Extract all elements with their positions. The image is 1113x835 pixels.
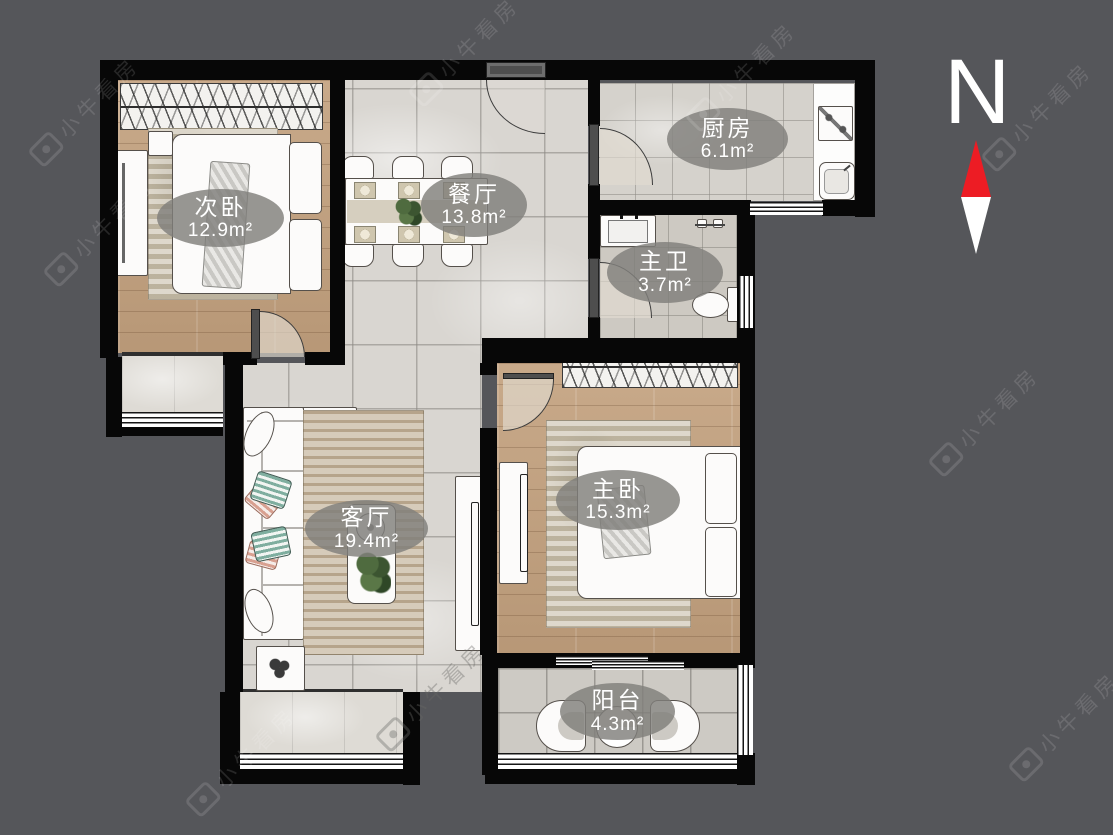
shower-bar bbox=[695, 224, 725, 226]
room-area: 19.4m² bbox=[334, 531, 399, 553]
tv bbox=[471, 502, 479, 626]
camera-icon bbox=[42, 250, 80, 288]
camera-icon bbox=[184, 780, 222, 818]
dining-chair bbox=[342, 156, 374, 179]
room-area: 4.3m² bbox=[591, 714, 645, 736]
room-name: 次卧 bbox=[195, 194, 247, 220]
wall-segment bbox=[855, 60, 875, 217]
wall-segment bbox=[482, 338, 755, 363]
room-area: 12.9m² bbox=[188, 220, 253, 242]
wall-segment bbox=[588, 200, 751, 215]
place-setting bbox=[354, 182, 376, 199]
stove bbox=[818, 106, 853, 141]
entry-door-leaf bbox=[486, 62, 546, 78]
wardrobe bbox=[120, 83, 323, 130]
room-label-secondary-bedroom: 次卧 12.9m² bbox=[157, 189, 284, 247]
dining-chair bbox=[392, 244, 424, 267]
wall-segment bbox=[330, 80, 345, 365]
tv bbox=[520, 474, 528, 572]
sliding-door-balcony bbox=[592, 661, 684, 670]
wall-segment bbox=[106, 426, 223, 436]
wall-segment bbox=[482, 653, 498, 775]
sofa-seam bbox=[263, 584, 303, 586]
pillow bbox=[289, 142, 322, 214]
pillow bbox=[705, 527, 737, 597]
camera-icon bbox=[1007, 745, 1045, 783]
watermark-text: 小牛看房 bbox=[1031, 665, 1113, 760]
bathroom-door-leaf bbox=[589, 258, 599, 318]
room-label-master-bathroom: 主卫 3.7m² bbox=[607, 242, 723, 303]
baywindow-sill bbox=[122, 352, 223, 356]
room-name: 主卧 bbox=[592, 476, 644, 502]
wall-segment bbox=[305, 352, 345, 365]
wall-segment bbox=[225, 357, 243, 692]
window-kitchen bbox=[750, 202, 823, 215]
room-area: 3.7m² bbox=[638, 275, 692, 297]
place-setting bbox=[354, 226, 376, 243]
pillow bbox=[289, 219, 322, 291]
watermark: 小牛看房 bbox=[1005, 665, 1113, 786]
kitchen-door-leaf bbox=[589, 124, 599, 186]
room-area: 6.1m² bbox=[701, 141, 755, 163]
room-name: 餐厅 bbox=[448, 181, 500, 207]
room-name: 阳台 bbox=[592, 687, 644, 713]
wall-segment bbox=[485, 768, 753, 784]
bathroom-basin bbox=[608, 220, 648, 243]
north-label: N bbox=[944, 46, 1010, 138]
room-name: 主卫 bbox=[639, 248, 691, 274]
camera-icon bbox=[927, 440, 965, 478]
wall-segment bbox=[106, 357, 122, 437]
room-label-dining-room: 餐厅 13.8m² bbox=[421, 173, 527, 237]
window-bedroom-bay bbox=[122, 412, 223, 427]
wall-segment bbox=[588, 213, 600, 259]
window-balcony-south bbox=[498, 753, 737, 769]
pillow bbox=[705, 453, 737, 524]
floor-plan-canvas: 次卧 12.9m² 餐厅 13.8m² 厨房 6.1m² 主卫 3.7m² 客厅… bbox=[0, 0, 1113, 835]
wall-segment bbox=[480, 428, 497, 655]
window-balcony-east bbox=[737, 665, 753, 755]
sofa-seam bbox=[263, 470, 303, 472]
wardrobe-rail bbox=[121, 106, 322, 108]
wall-segment bbox=[480, 363, 497, 375]
dining-chair bbox=[392, 156, 424, 179]
wardrobe-rail bbox=[563, 366, 737, 368]
room-label-balcony: 阳台 4.3m² bbox=[560, 683, 675, 740]
room-label-master-bedroom: 主卧 15.3m² bbox=[556, 470, 680, 530]
watermark-text: 小牛看房 bbox=[951, 360, 1046, 455]
window-bathroom bbox=[739, 276, 753, 328]
room-label-living-room: 客厅 19.4m² bbox=[305, 500, 428, 557]
room-area: 15.3m² bbox=[585, 502, 650, 524]
dining-chair bbox=[441, 244, 473, 267]
flower-icon bbox=[268, 656, 292, 680]
compass-needle-south bbox=[961, 197, 991, 254]
wall-segment bbox=[740, 338, 755, 668]
table-plant bbox=[393, 196, 423, 226]
place-setting bbox=[398, 226, 420, 243]
wall-segment bbox=[588, 80, 600, 126]
room-name: 客厅 bbox=[341, 504, 393, 530]
nightstand bbox=[148, 131, 173, 156]
watermark: 小牛看房 bbox=[925, 360, 1046, 481]
room-area: 13.8m² bbox=[441, 207, 506, 229]
secondary-bedroom-door-leaf bbox=[251, 309, 260, 359]
dining-chair bbox=[342, 244, 374, 267]
kitchen-sink-basin bbox=[824, 169, 849, 194]
camera-icon bbox=[27, 130, 65, 168]
watermark-text: 小牛看房 bbox=[1004, 55, 1099, 150]
floor-secondary-bedroom-baywindow bbox=[122, 356, 223, 414]
